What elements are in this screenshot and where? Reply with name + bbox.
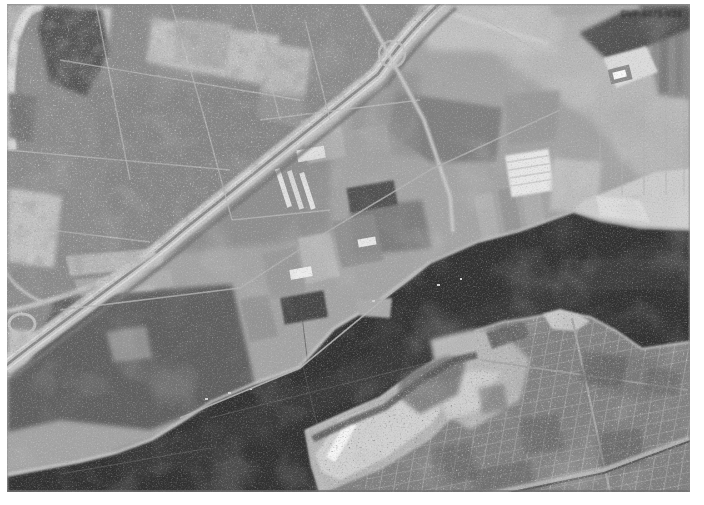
svg-text:DVP-6071-V23: DVP-6071-V23 (621, 9, 682, 19)
